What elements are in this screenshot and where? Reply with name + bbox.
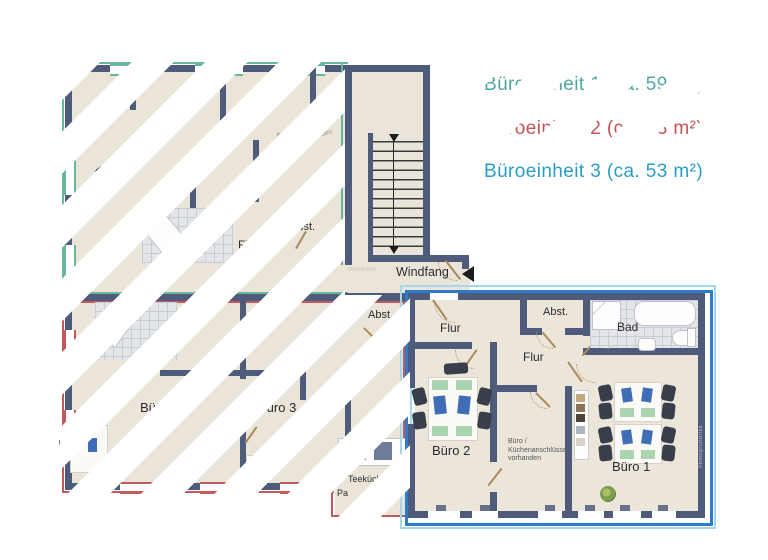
staircase [368, 133, 428, 255]
wall [490, 492, 497, 511]
unit1-outline [341, 63, 343, 265]
chair [477, 411, 492, 430]
shelf-box [576, 438, 585, 446]
sink [638, 338, 656, 351]
legend-item-unit1: Büroeinheit 1 (ca. 59 m²) [484, 74, 703, 96]
window [538, 511, 562, 518]
monitor [88, 438, 97, 452]
radiator [585, 505, 595, 511]
shelf-box [576, 414, 585, 422]
unit2-outline [62, 297, 64, 493]
room-label-buero1: Büro 1 [612, 459, 650, 474]
kitchen-connections-note: Büro / Küchenanschlüsse vorhanden [508, 438, 567, 464]
room-label-buero3: Büro 3 [258, 400, 296, 415]
chair [661, 444, 676, 461]
window [652, 511, 676, 518]
toilet-tank [687, 328, 696, 347]
unit1-outline [62, 62, 348, 64]
wall [130, 65, 136, 110]
wall [345, 65, 352, 265]
wall [310, 65, 316, 115]
note-line: vorhanden [508, 455, 541, 462]
floorplan-image: Bad Flur Abst. Abst. Büro 4 Büro 3 Teekü… [0, 0, 768, 560]
wall [698, 293, 705, 518]
room-label-abst: Abst. [543, 306, 568, 318]
entrance-arrow-icon [462, 266, 474, 282]
room-label-flur: Flur [238, 238, 259, 252]
unit1-outline [63, 292, 348, 294]
wall [520, 300, 527, 330]
chair-pad [641, 408, 655, 417]
armchair [267, 446, 289, 465]
room-label-bad: Bad [617, 320, 638, 334]
stair-arrow-icon [389, 246, 399, 254]
room-label-buero2: Büro 2 [432, 443, 470, 458]
door-opening [430, 293, 458, 300]
wall [240, 301, 246, 379]
note-line: Büro / [508, 438, 527, 445]
monitor [641, 429, 653, 444]
window [285, 64, 325, 76]
chair-pad [620, 408, 634, 417]
chair-pad [432, 426, 448, 436]
window [64, 150, 76, 195]
room-label-flur: Flur [523, 350, 544, 364]
chair [661, 402, 676, 419]
room-label-abst-lower: Abst. [368, 309, 393, 321]
room-label-abst-upper: Abst. [290, 221, 315, 233]
radiator [620, 505, 630, 511]
stair-rail [393, 138, 394, 250]
radiator [480, 505, 490, 511]
watermark-vertical-text: Immogrundriss [698, 425, 704, 468]
chair-pad [456, 426, 472, 436]
chair-pad [641, 450, 655, 459]
wall [253, 140, 259, 202]
chair-pad [432, 380, 448, 390]
wall [497, 385, 537, 392]
monitor [641, 387, 653, 402]
hatch-overlay-legend [478, 58, 733, 158]
shelf-box [576, 426, 585, 434]
wall [160, 370, 285, 376]
wall [220, 65, 226, 123]
chair-pad [456, 380, 472, 390]
unit1-outline [62, 62, 64, 294]
table [246, 455, 266, 469]
unit2-outline [62, 491, 334, 493]
label-fragment-pa: Pa [337, 488, 348, 498]
chair [412, 411, 427, 430]
shelf-box [576, 394, 585, 402]
radiator [658, 505, 668, 511]
window [64, 245, 76, 287]
bathtub [634, 301, 696, 326]
legend-item-unit3: Büroeinheit 3 (ca. 53 m²) [484, 161, 703, 183]
wall [300, 340, 306, 400]
room-label-windfang: Windfang [396, 265, 449, 279]
monitor [621, 429, 633, 444]
unit2-outline [331, 489, 333, 517]
room-label-bad: Bad [183, 240, 204, 254]
wall [490, 342, 497, 462]
wall [583, 300, 590, 336]
wall [368, 255, 430, 262]
window [428, 511, 460, 518]
wall [240, 415, 246, 485]
window [613, 511, 641, 518]
chair-pad [620, 450, 634, 459]
legend-item-unit2: Büroeinheit 2 (ca. 63 m²) [484, 118, 703, 140]
plant [170, 460, 186, 476]
window [64, 330, 76, 370]
chair [598, 402, 613, 419]
watermark-text: Immobilien [347, 267, 376, 274]
room-label-teekueche: Teeküche [348, 474, 387, 484]
radiator [545, 505, 555, 511]
radiator [436, 505, 446, 511]
shelf-box [576, 404, 585, 412]
window [472, 511, 498, 518]
monitor [433, 395, 447, 414]
printer [444, 362, 469, 375]
wall [190, 160, 196, 208]
room-label-buero4: Büro 4 [140, 400, 178, 415]
chair-pad [74, 430, 86, 439]
room-label-flur: Flur [440, 321, 461, 335]
kitchen-stove [374, 442, 392, 460]
plant [600, 486, 616, 502]
window [578, 511, 604, 518]
monitor [457, 395, 471, 414]
chair [598, 444, 613, 461]
monitor [621, 387, 633, 402]
stair-arrow-icon [389, 134, 399, 142]
window [195, 64, 243, 76]
note-line: Küchenanschlüsse [508, 447, 567, 454]
kitchen-sink [344, 442, 366, 460]
wall [415, 342, 472, 349]
